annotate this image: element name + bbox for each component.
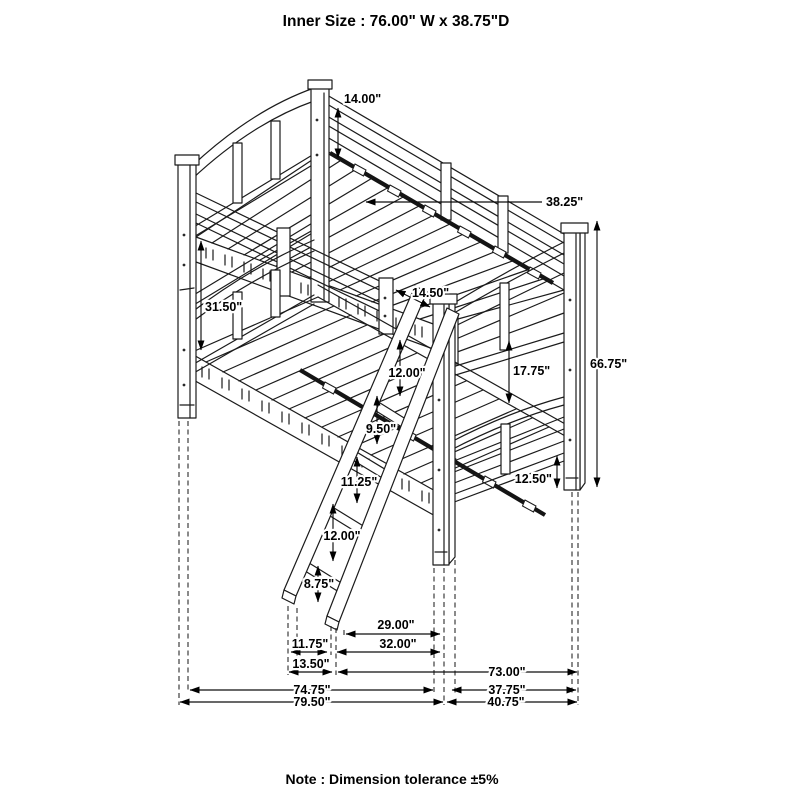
- dim-bunk-depth: 38.25": [546, 195, 583, 209]
- dim-frame-length: 73.00": [488, 665, 525, 679]
- head-back-post: [308, 80, 332, 302]
- headboard-mullion: [271, 270, 280, 317]
- dim-rung2-to-rung3: 11.25": [341, 475, 378, 489]
- dim-ladder-opening: 14.50": [412, 286, 449, 300]
- upper-footboard: [449, 242, 564, 377]
- extension-lines: [179, 421, 578, 705]
- dim-overall-height: 66.75": [590, 357, 627, 371]
- back-rail-stile: [498, 196, 508, 253]
- back-rail-stile: [441, 163, 451, 220]
- dim-overall-length: 79.50": [293, 695, 330, 709]
- headboard-mullion: [233, 143, 242, 203]
- dimension-annotations: 14.00" 38.25" 31.50" 14.50" 12.00" 9.50"…: [180, 92, 627, 709]
- tolerance-note: Note : Dimension tolerance ±5%: [285, 771, 499, 787]
- footboard-mullion: [500, 283, 509, 350]
- dimension-diagram-page: 14.00" 38.25" 31.50" 14.50" 12.00" 9.50"…: [0, 0, 800, 800]
- dim-rung1-to-rung2: 9.50": [366, 422, 396, 436]
- dim-rung4-to-floor: 8.75": [304, 577, 334, 591]
- foot-back-post: [561, 223, 588, 490]
- dim-upper-to-lower-gap: 17.75": [513, 364, 550, 378]
- dim-ladder-to-leg-outer: 32.00": [379, 637, 416, 651]
- dim-rung3-to-rung4: 12.00": [323, 529, 360, 543]
- inner-size-title: Inner Size : 76.00" W x 38.75"D: [283, 13, 510, 30]
- dim-ladder-feet-inner: 11.75": [292, 637, 329, 651]
- headboard-mullion: [271, 121, 280, 179]
- dim-deck-to-rung1: 12.00": [388, 366, 425, 380]
- head-front-post: [175, 155, 199, 418]
- footboard-mullion: [501, 424, 510, 474]
- dim-ladder-feet-outer: 13.50": [292, 657, 329, 671]
- bed-line-drawing: [175, 80, 588, 630]
- bunk-bed-dimension-drawing: 14.00" 38.25" 31.50" 14.50" 12.00" 9.50"…: [0, 0, 800, 800]
- dim-under-bed-clearance: 12.50": [515, 472, 552, 486]
- dim-ladder-to-leg: 29.00": [377, 618, 414, 632]
- dim-bunk-clearance: 31.50": [205, 300, 242, 314]
- dim-end-depth-overall: 40.75": [487, 695, 524, 709]
- dim-headboard-rail-height: 14.00": [344, 92, 381, 106]
